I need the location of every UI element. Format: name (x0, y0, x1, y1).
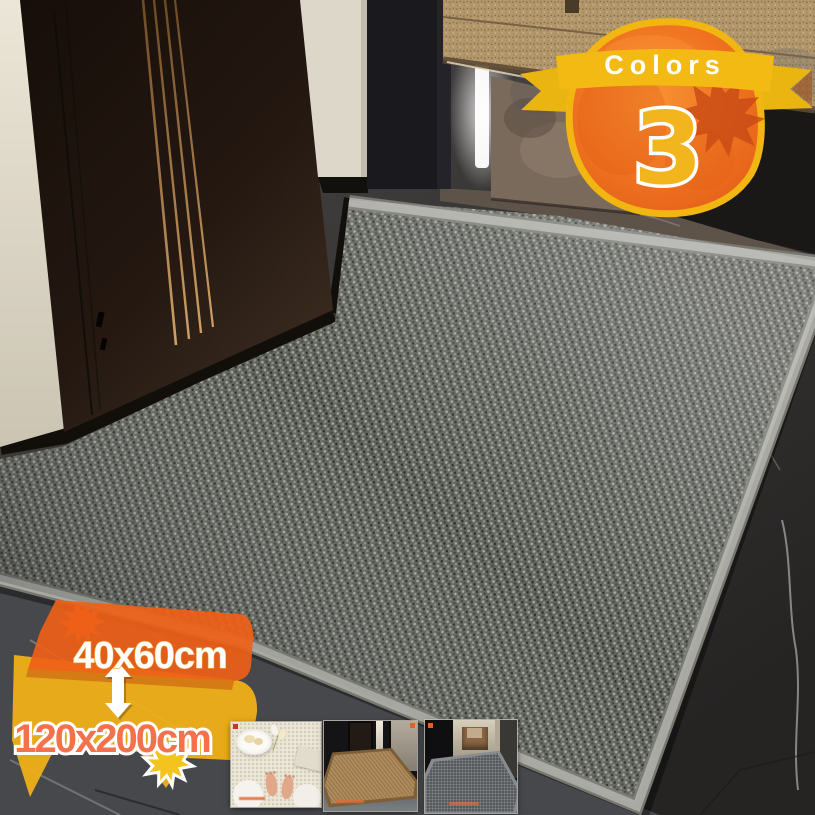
variant-thumbnail-grey[interactable] (425, 720, 517, 813)
notebook (294, 746, 321, 773)
watermark (449, 802, 479, 805)
variant-thumbnail-beige[interactable] (231, 722, 321, 807)
lit-doorway (376, 721, 383, 751)
corner-mark (233, 724, 238, 729)
corner-mark (428, 723, 433, 728)
product-image: Colors 3 40x60cm (0, 0, 815, 815)
size-callout: 40x60cm 120x200cm (12, 595, 257, 797)
colors-ribbon-label: Colors (604, 50, 726, 80)
variant-thumbnail-brown[interactable] (324, 721, 417, 811)
corner-mark (410, 723, 415, 728)
size-small-label: 40x60cm (73, 635, 227, 677)
colors-badge: Colors 3 (510, 22, 813, 214)
watermark (239, 797, 265, 800)
promo-overlays: Colors 3 40x60cm (0, 0, 815, 815)
size-large-label: 120x200cm (14, 717, 210, 761)
back-door (348, 721, 373, 753)
feet (265, 772, 279, 796)
color-count: 3 (633, 90, 703, 207)
watermark (336, 800, 364, 803)
